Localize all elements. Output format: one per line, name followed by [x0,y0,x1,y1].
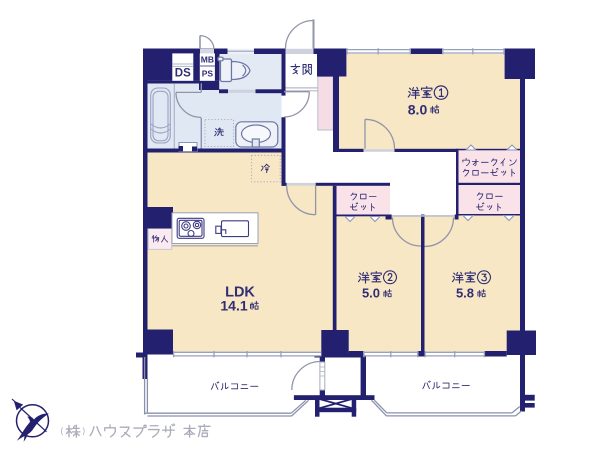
svg-text:DS: DS [175,68,191,80]
svg-text:5.8: 5.8 [456,286,474,301]
svg-text:8.0: 8.0 [408,101,428,117]
svg-text:PS: PS [202,69,214,79]
svg-text:5.0: 5.0 [362,286,380,301]
svg-text:14.1: 14.1 [220,298,247,314]
svg-text:MB: MB [201,55,214,65]
